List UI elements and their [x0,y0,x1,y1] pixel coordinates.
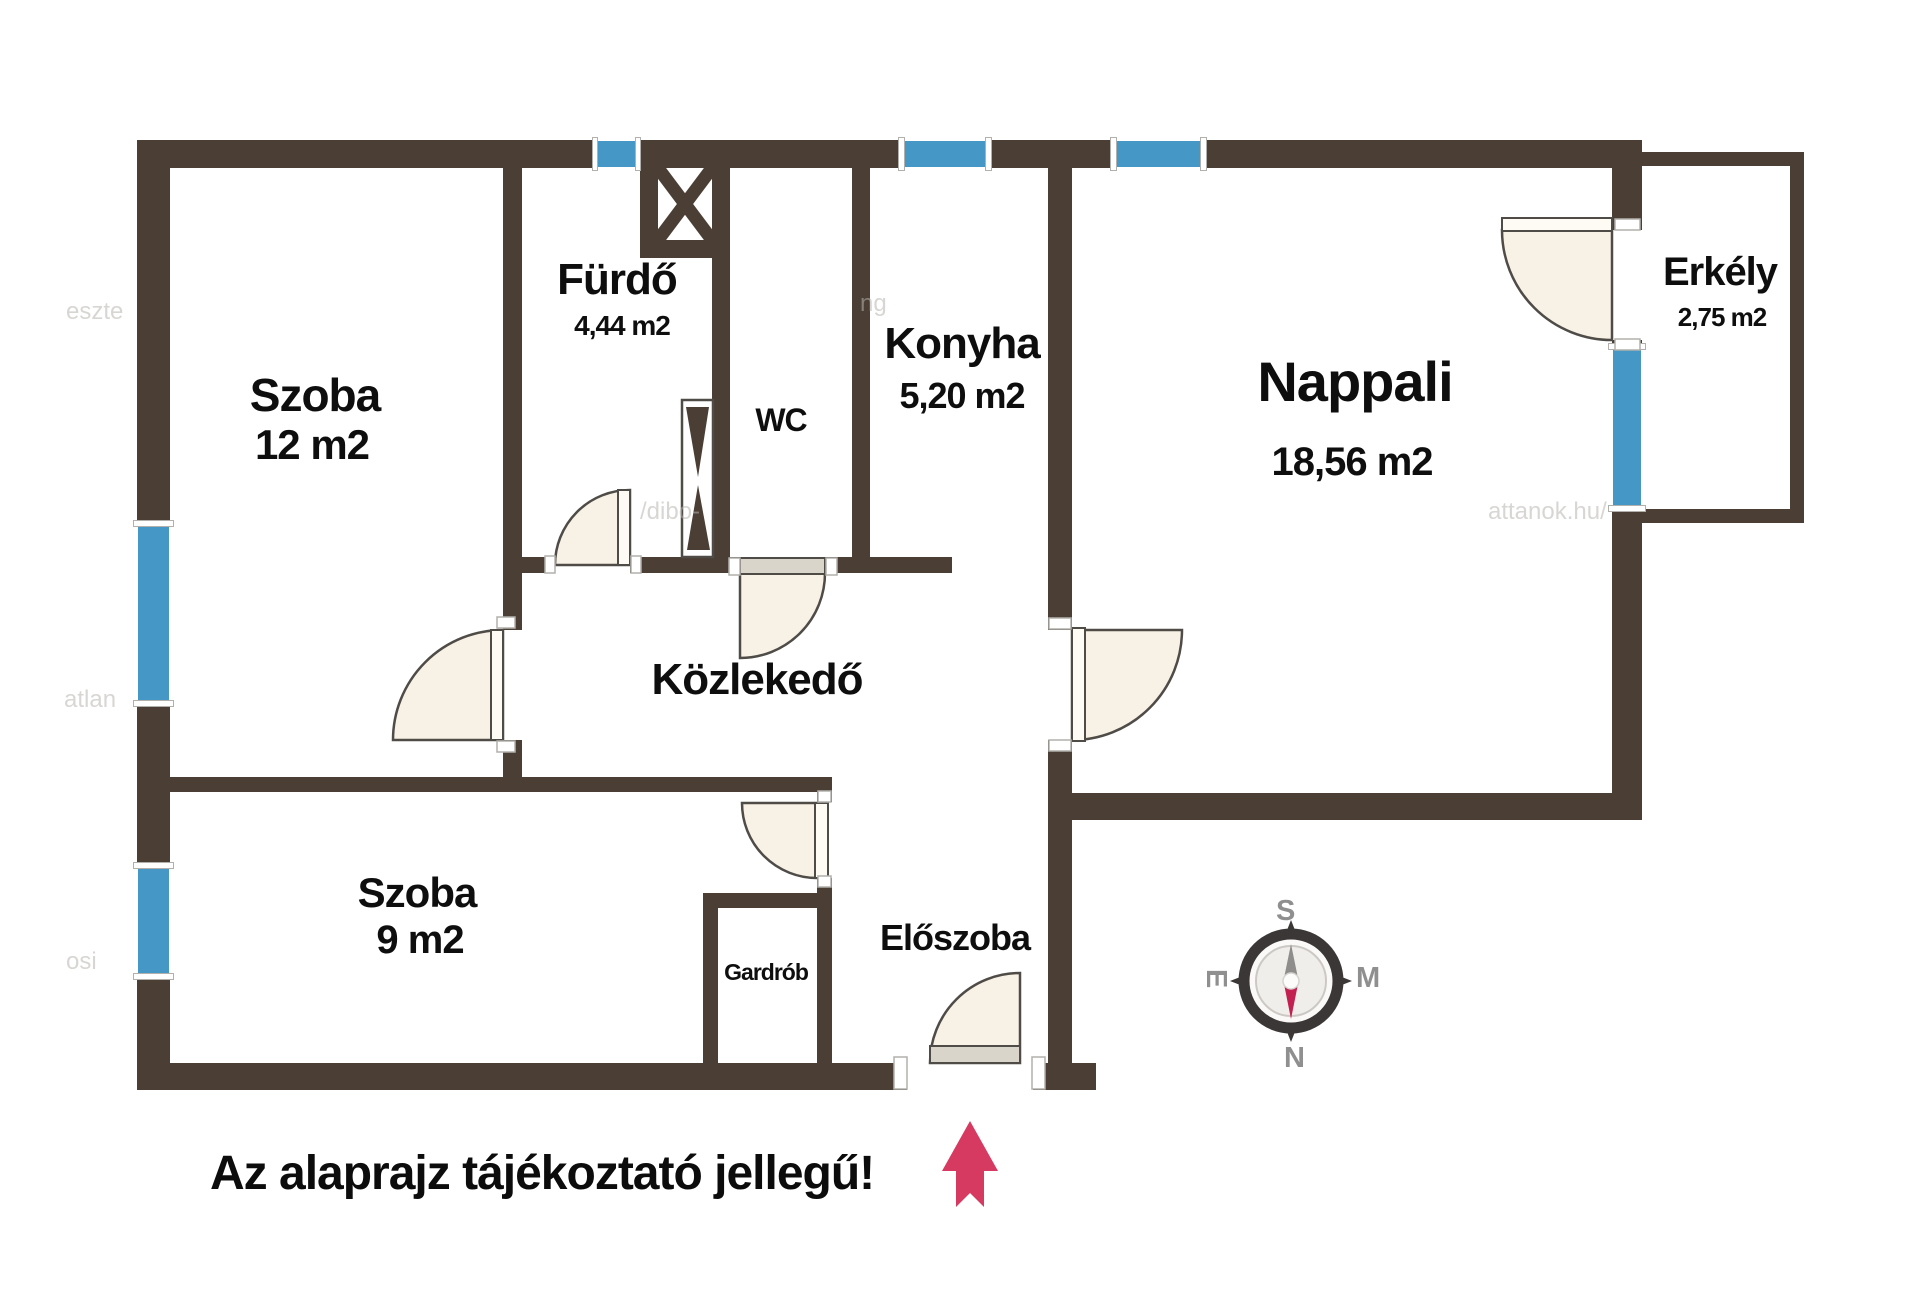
room-area-szoba9: 9 m2 [376,920,463,960]
compass-letter-right: M [1356,964,1380,993]
shaft-x-icon [658,168,712,240]
plan-symbols [0,0,1920,1307]
room-area-konyha: 5,20 m2 [899,378,1024,414]
radiator-icon [682,400,713,557]
room-label-erkely: Erkély [1663,252,1777,292]
door-entrance [894,973,1045,1089]
room-area-erkely: 2,75 m2 [1678,304,1766,330]
compass-letter-top: S [1276,897,1295,926]
room-label-kozlekedo: Közlekedő [651,658,862,702]
compass-letter-bottom: N [1284,1044,1305,1073]
room-label-nappali: Nappali [1257,354,1452,410]
watermark-text: atlan [64,686,116,714]
watermark-text: osi [66,948,97,976]
room-label-szoba12: Szoba [250,372,380,418]
room-area-szoba12: 12 m2 [255,424,369,466]
room-label-konyha: Konyha [884,322,1039,366]
door-szoba12 [393,617,515,752]
room-label-gardrob: Gardrób [724,961,808,984]
watermark-text: attanok.hu/ [1488,498,1607,526]
door-szoba9 [742,791,831,887]
disclaimer-text: Az alaprajz tájékoztató jellegű! [210,1150,874,1198]
room-label-wc: WC [755,404,806,436]
floor-plan: Szoba 12 m2 Fürdő 4,44 m2 WC Konyha 5,20… [0,0,1920,1307]
watermark-text: /dibo- [640,498,700,526]
room-area-nappali: 18,56 m2 [1271,442,1432,482]
compass-icon [1230,920,1352,1042]
door-furdo [545,490,641,573]
north-arrow-icon [942,1121,998,1207]
watermark-text: ng [860,290,887,318]
door-nappali [1049,618,1182,751]
room-area-furdo: 4,44 m2 [574,312,670,340]
room-label-eloszoba: Előszoba [880,920,1030,956]
room-label-szoba9: Szoba [358,872,477,914]
watermark-text: eszte [66,298,123,326]
door-wc [729,558,837,658]
door-erkely [1502,218,1640,350]
room-label-furdo: Fürdő [557,258,677,302]
compass-letter-left: E [1201,969,1230,988]
